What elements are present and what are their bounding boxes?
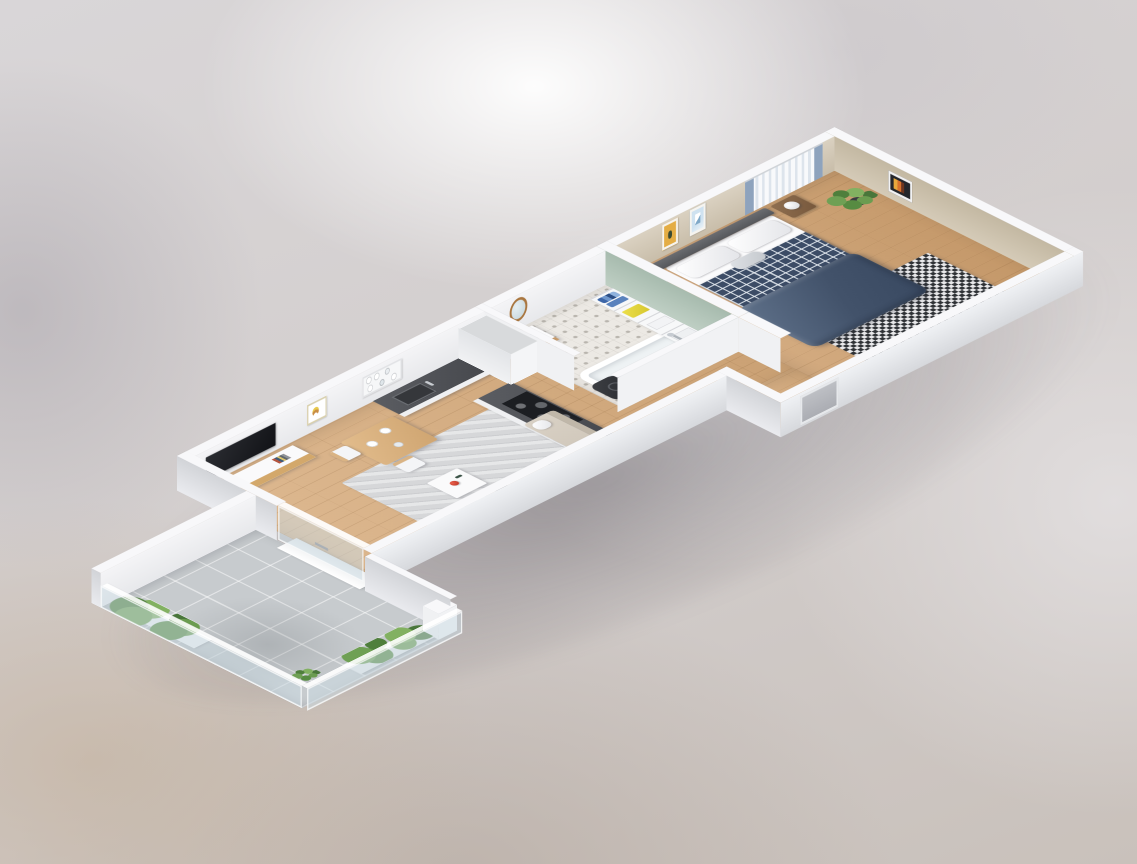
frame2-sail	[695, 212, 700, 225]
door-handle	[314, 542, 327, 551]
parapet-outer-face	[91, 568, 100, 607]
bedroom-art-frame-1	[662, 217, 678, 251]
bedroom-art-frame-2	[689, 203, 705, 237]
end-wall-dark-frame	[888, 170, 912, 203]
apartment-plan	[0, 135, 1137, 740]
floorplan-scene	[0, 0, 1137, 864]
step-wall	[717, 401, 789, 437]
poster-art	[312, 405, 319, 417]
living-poster	[307, 395, 327, 426]
storage-yellow-box	[621, 304, 650, 318]
frame1-figure	[668, 230, 672, 240]
plate	[363, 440, 380, 449]
end-frame-art	[893, 178, 904, 194]
bowl	[391, 441, 405, 448]
red-teapot	[447, 480, 460, 487]
console-books	[271, 454, 291, 464]
plate	[376, 426, 393, 435]
table-tray-item	[454, 474, 463, 478]
storage-towels	[646, 315, 675, 329]
